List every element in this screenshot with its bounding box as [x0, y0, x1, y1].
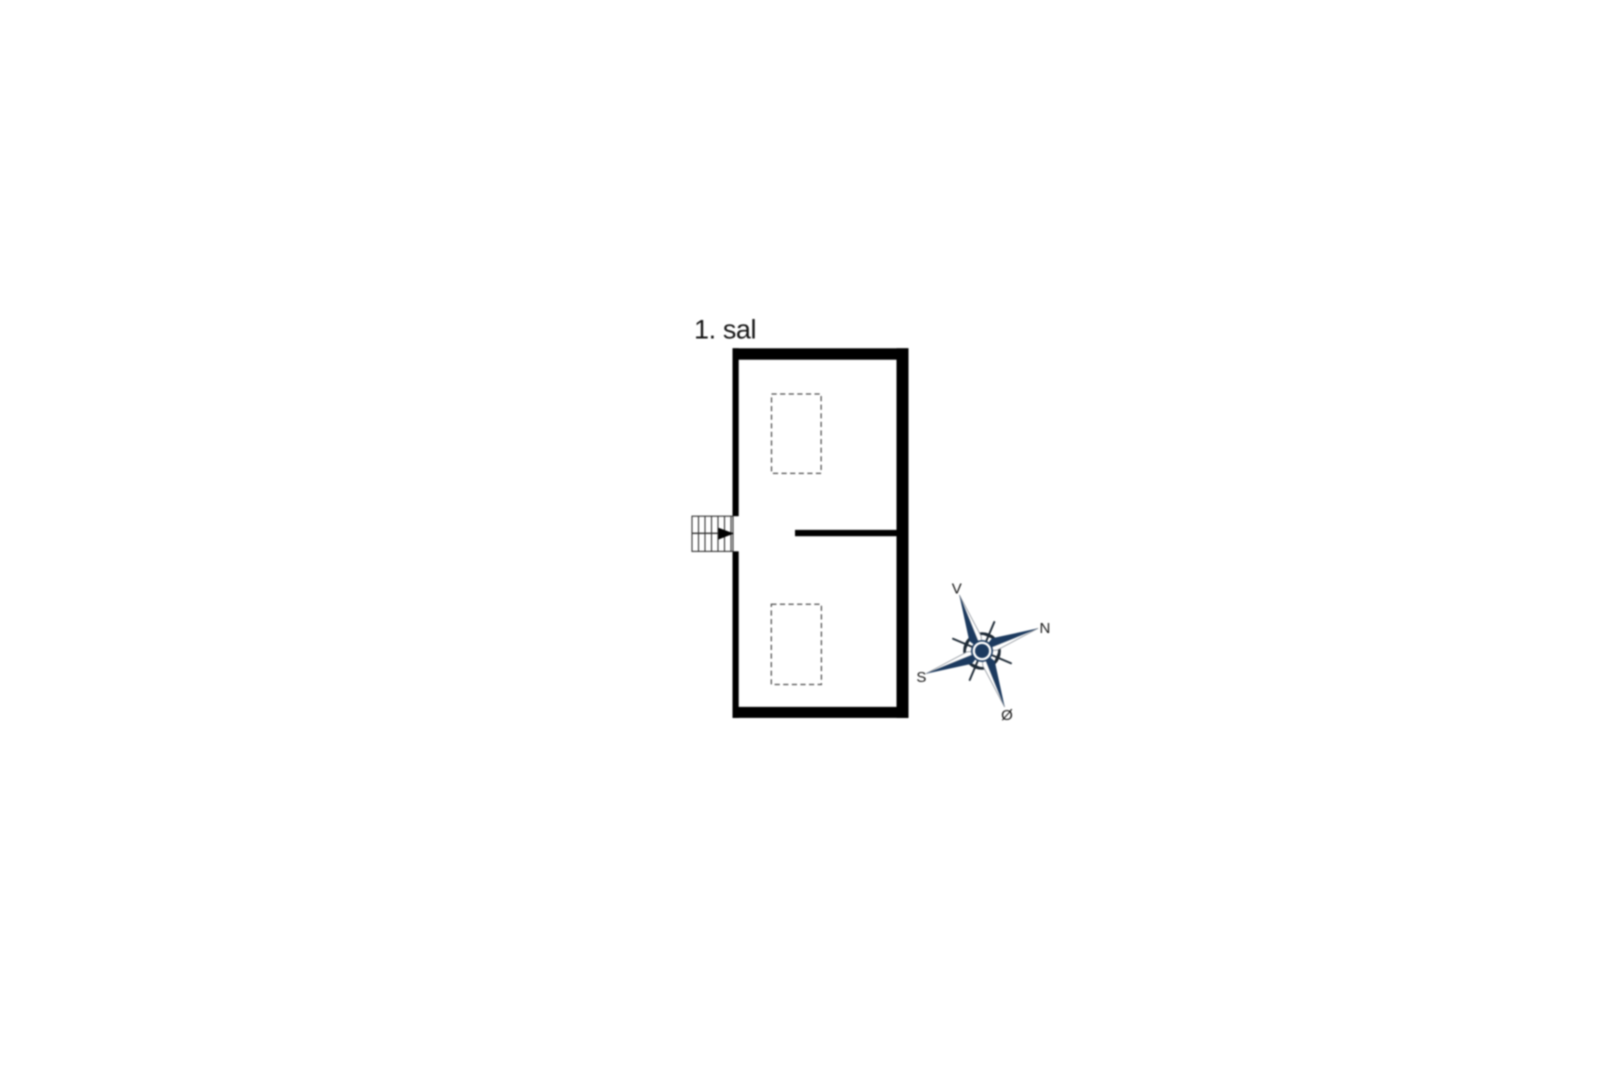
svg-text:Ø: Ø [1001, 707, 1013, 724]
svg-text:N: N [1039, 620, 1050, 637]
svg-text:V: V [952, 580, 962, 597]
svg-text:1. sal: 1. sal [694, 315, 756, 345]
svg-text:S: S [916, 669, 926, 686]
